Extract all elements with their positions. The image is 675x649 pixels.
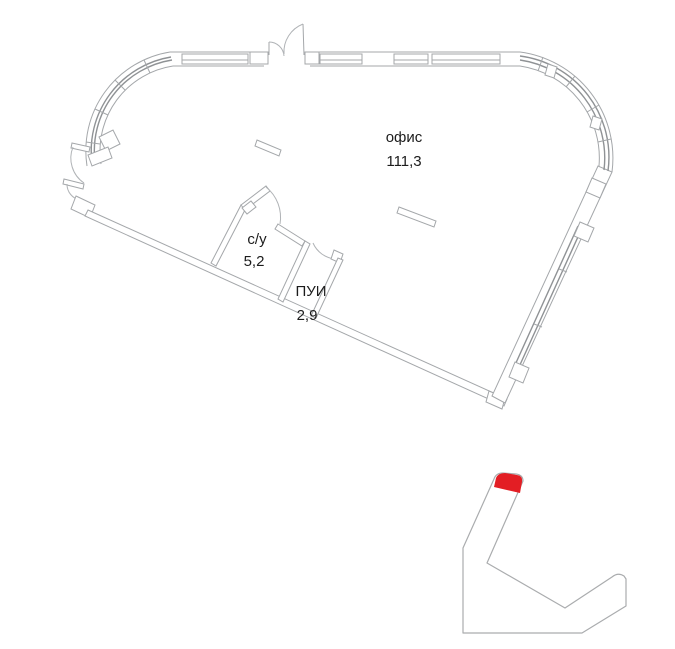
window-top-2 xyxy=(394,54,428,64)
curve-right-inner xyxy=(520,66,599,166)
top-door-left-jamb xyxy=(250,52,268,64)
bathroom-left-wall xyxy=(211,205,246,266)
curve-left-inner xyxy=(100,66,173,164)
window-top-1 xyxy=(320,54,362,64)
pui-area-label: 2,9 xyxy=(297,307,318,324)
top-entrance-door xyxy=(250,24,319,64)
floor-plan-canvas: офис 111,3 с/у 5,2 ПУИ 2,9 xyxy=(0,0,675,649)
office-wall-stub-1 xyxy=(255,140,281,156)
floor-plan-page: офис 111,3 с/у 5,2 ПУИ 2,9 xyxy=(0,0,675,649)
window-top-left xyxy=(182,54,248,64)
office-wall-stub-2 xyxy=(397,207,436,227)
right-window-glass-2 xyxy=(515,226,578,365)
top-door-right-jamb xyxy=(305,52,319,64)
office-area-label: 111,3 xyxy=(386,153,421,170)
curved-wall-top-left xyxy=(86,52,173,166)
building-minimap xyxy=(463,473,626,633)
unit-walls xyxy=(63,24,613,409)
right-window-glass-1 xyxy=(519,228,582,367)
bathroom-right-top-wall xyxy=(275,224,305,246)
top-door-small-swing-arc xyxy=(269,42,284,56)
curve-left-outer xyxy=(86,52,170,166)
right-diagonal-wall xyxy=(492,166,612,403)
bathroom-area-label: 5,2 xyxy=(244,253,265,270)
left-door-upper-leaf xyxy=(71,143,90,152)
bathroom-name-label: с/у xyxy=(247,231,267,248)
top-door-large-swing-arc xyxy=(284,24,303,54)
curve-right-glass-1 xyxy=(520,56,609,171)
top-door-large-leaf xyxy=(303,24,304,55)
curve-right-joint-1 xyxy=(545,64,557,78)
office-name-label: офис xyxy=(386,129,423,146)
building-outline xyxy=(463,473,626,633)
pui-name-label: ПУИ xyxy=(295,283,326,300)
curved-wall-top-right xyxy=(520,52,613,172)
window-top-3 xyxy=(432,54,500,64)
curve-left-mullions xyxy=(86,60,150,144)
curve-right-glass-2 xyxy=(520,60,605,170)
left-door-upper-swing-arc xyxy=(71,147,84,183)
